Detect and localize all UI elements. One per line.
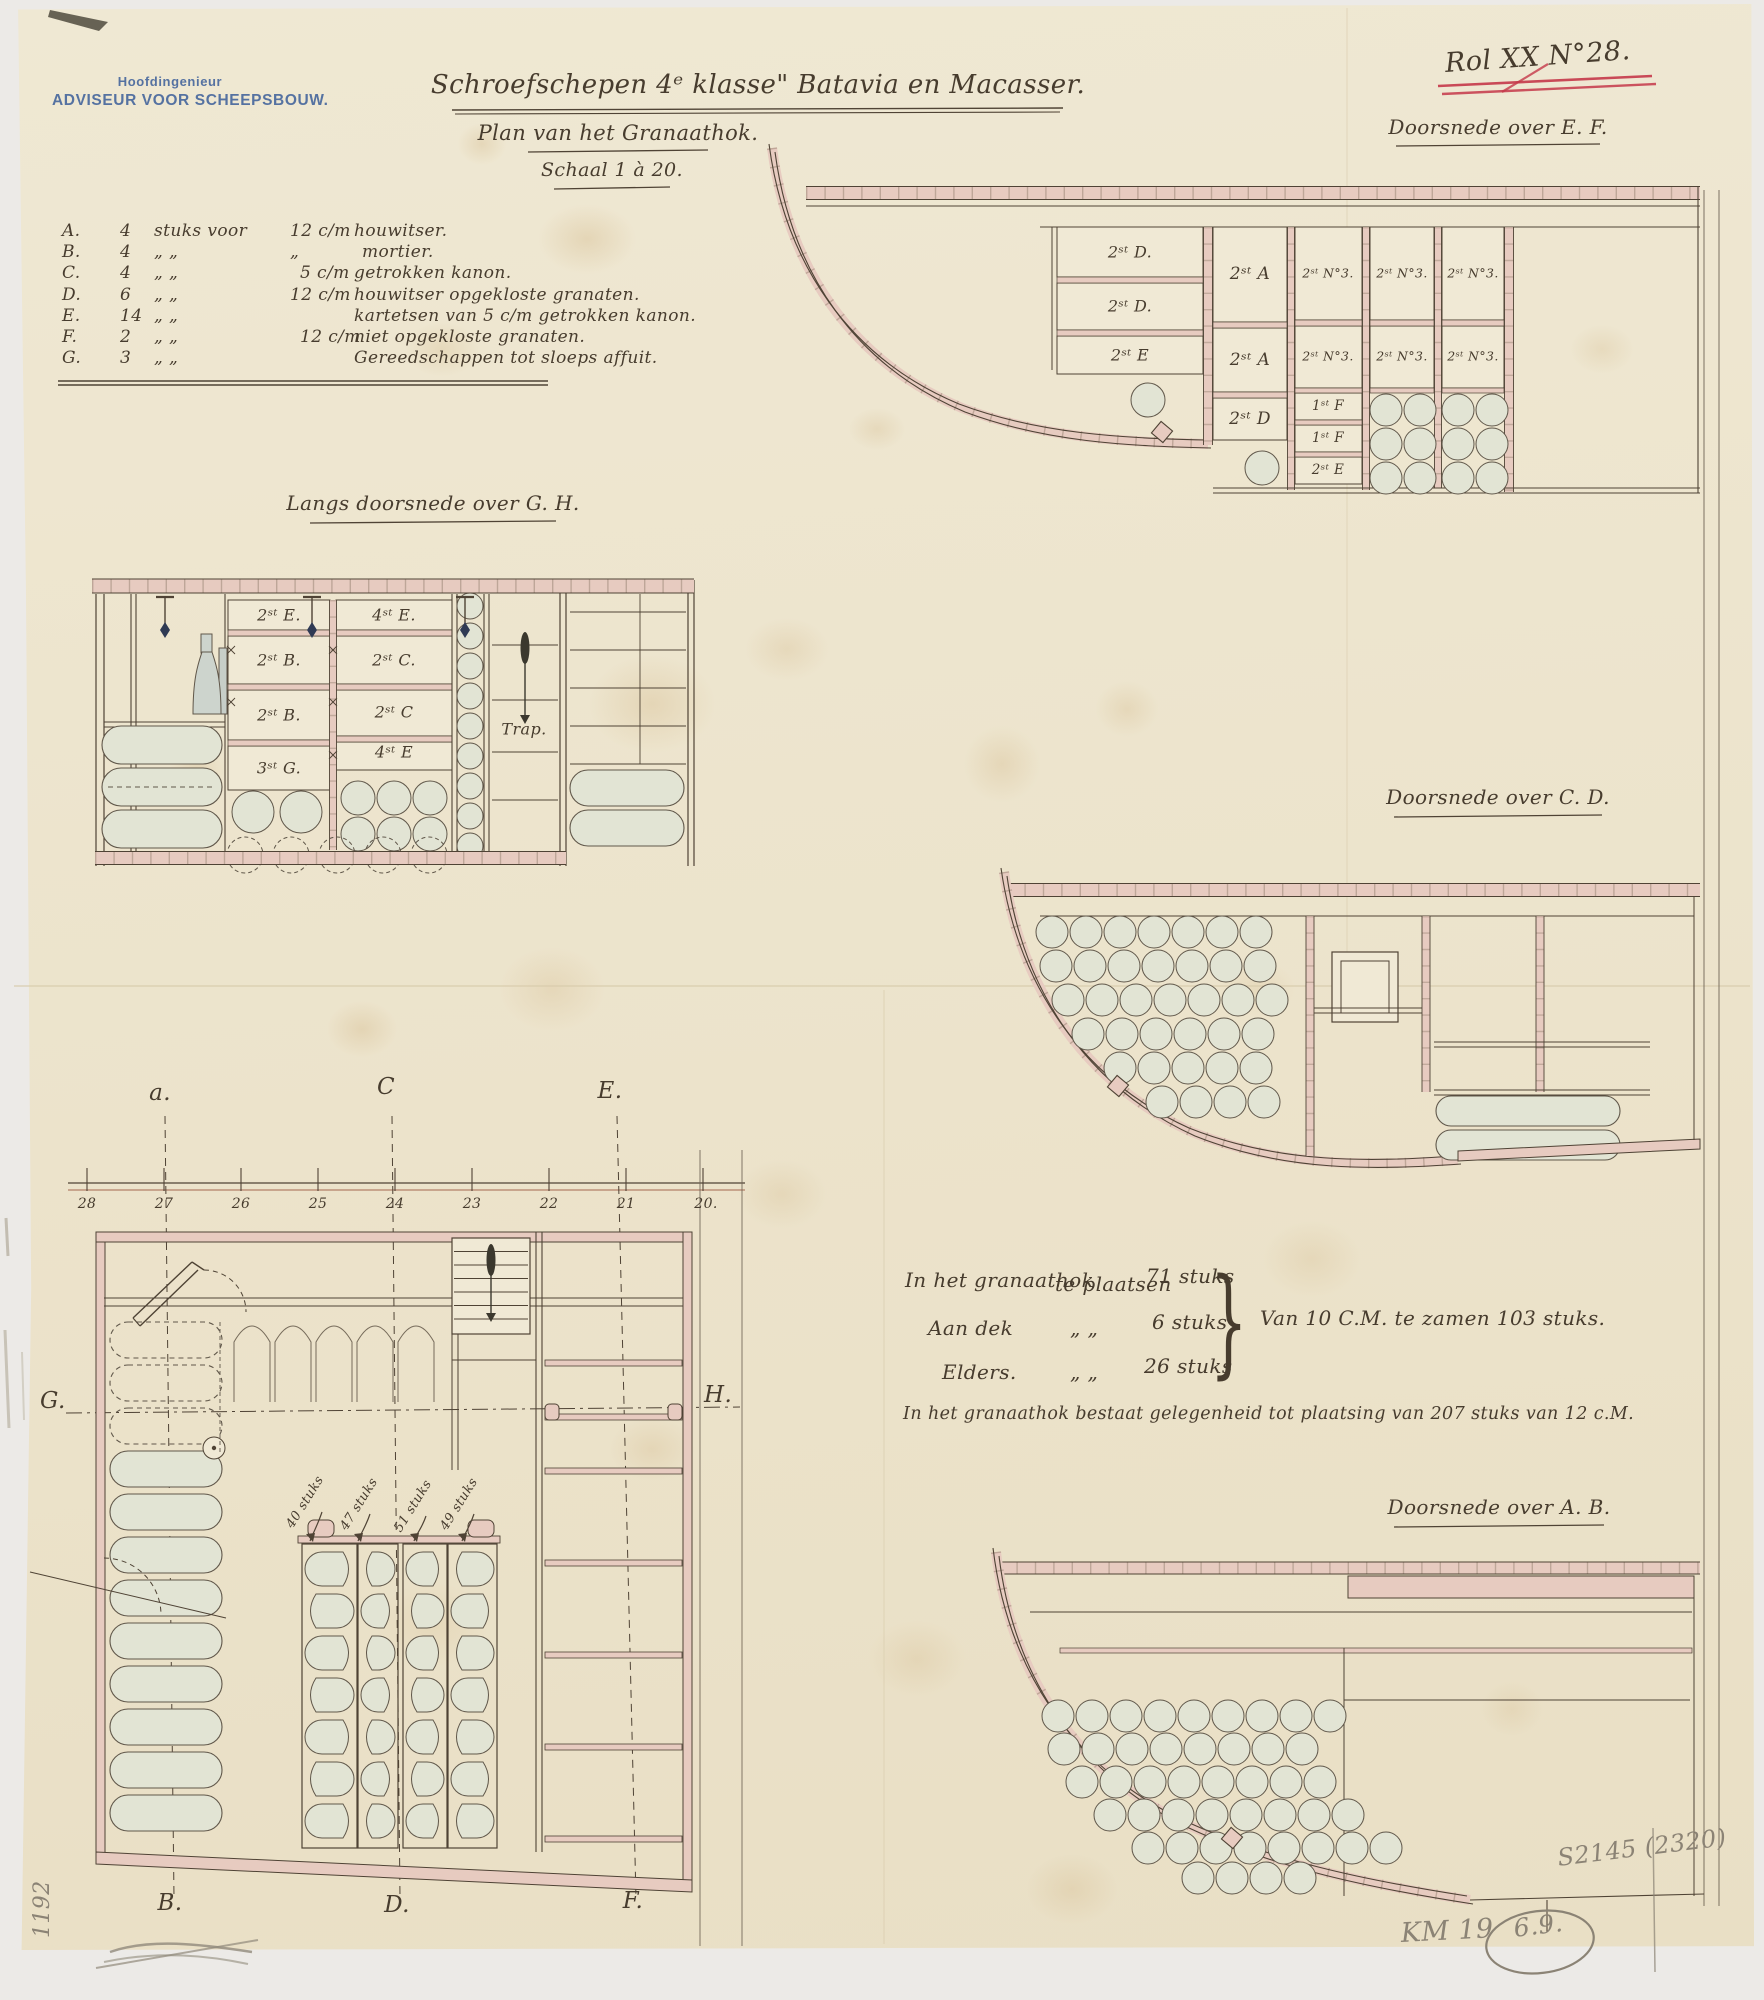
plan-top-label-a: a. [149,1080,171,1106]
inventory-circled: 6.9. [1512,1908,1564,1943]
plan-top-label-c: C [377,1074,395,1100]
frame-number: 22 [540,1196,559,1212]
ef-cell-label: 1ˢᵗ F [1312,398,1344,414]
frame-number: 21 [617,1196,636,1212]
plan-left-label-g: G. [40,1388,66,1414]
gh-cell-label: 2ˢᵗ B. [257,706,301,725]
page-subtitle: Plan van het Granaathok. [478,121,759,145]
note-summary: Van 10 C.M. te zamen 103 stuks. [1260,1306,1605,1330]
frame-number: 23 [463,1196,482,1212]
gh-cell-label: 2ˢᵗ C. [372,651,416,670]
scale-label: Schaal 1 à 20. [541,159,683,181]
gh-cell-label: 2ˢᵗ E. [257,606,301,625]
ef-cell-label: 2ˢᵗ N°3. [1376,266,1428,281]
legend: A.4stuks voor12 c/mhouwitser. B.4„ „„mor… [62,221,622,369]
margin-pencil-number: 1192 [30,1880,55,1938]
ef-cell-label: 2ˢᵗ N°3. [1447,266,1499,281]
plan-right-label-h: H. [704,1382,732,1408]
trap-label: Trap. [501,720,546,739]
scanned-drawing-page: Hoofdingenieur ADVISEUR VOOR SCHEEPSBOUW… [0,0,1764,2000]
gh-cell-label: 2ˢᵗ B. [257,651,301,670]
gh-cell-label: 3ˢᵗ G. [257,759,301,778]
legend-row: E.14„ „kartetsen van 5 c/m getrokken kan… [62,306,622,327]
ef-cell-label: 2ˢᵗ N°3. [1302,349,1354,364]
ef-cell-label: 2ˢᵗ A [1230,350,1270,370]
inventory-km: KM 19 [1400,1913,1494,1949]
ef-cell-label: 2ˢᵗ N°3. [1447,349,1499,364]
stamp-line1: Hoofdingenieur [118,74,222,89]
frame-number: 20. [694,1196,717,1212]
ef-cell-label: 2ˢᵗ N°3. [1302,266,1354,281]
page-title: Schroefschepen 4ᵉ klasse" Batavia en Mac… [431,70,1085,100]
section-title-cd: Doorsnede over C. D. [1386,785,1610,809]
ef-cell-label: 2ˢᵗ D. [1108,297,1152,316]
note-footnote: In het granaathok bestaat gelegenheid to… [903,1404,1634,1424]
section-title-ab: Doorsnede over A. B. [1388,1495,1611,1519]
legend-row: C.4„ „5 c/mgetrokken kanon. [62,263,622,284]
ef-cell-label: 1ˢᵗ F [1312,430,1344,446]
ef-cell-label: 2ˢᵗ A [1230,264,1270,284]
plan-bottom-label-b: B. [157,1890,182,1916]
plan-bottom-label-d: D. [384,1892,410,1918]
frame-number: 24 [386,1196,405,1212]
note-row2-mid: „ „ [1070,1316,1098,1340]
frame-number: 25 [309,1196,328,1212]
gh-cell-label: 4ˢᵗ E [375,743,413,762]
plan-bottom-label-f: F. [623,1888,644,1914]
legend-row: G.3„ „Gereedschappen tot sloeps affuit. [62,348,622,369]
gh-cell-label: 2ˢᵗ C [375,703,414,722]
note-row3-mid: „ „ [1070,1360,1098,1384]
legend-row: B.4„ „„mortier. [62,242,622,263]
note-row3-label: Elders. [942,1360,1017,1384]
ef-cell-label: 2ˢᵗ D [1229,409,1271,429]
plan-top-label-e: E. [598,1078,623,1104]
legend-row: F.2„ „12 c/mniet opgekloste granaten. [62,327,622,348]
ef-cell-label: 2ˢᵗ E [1111,346,1149,365]
ef-cell-label: 2ˢᵗ E [1312,462,1345,478]
ef-cell-label: 2ˢᵗ D. [1108,243,1152,262]
legend-row: D.6„ „12 c/mhouwitser opgekloste granate… [62,285,622,306]
frame-number: 27 [155,1196,174,1212]
frame-number: 26 [232,1196,251,1212]
stamp-line2: ADVISEUR VOOR SCHEEPSBOUW. [52,92,329,110]
gh-cell-label: 4ˢᵗ E. [372,606,416,625]
note-brace: } [1210,1252,1248,1390]
ef-cell-label: 2ˢᵗ N°3. [1376,349,1428,364]
frame-number: 28 [78,1196,97,1212]
section-title-ef: Doorsnede over E. F. [1388,115,1607,139]
note-row2-label: Aan dek [928,1316,1013,1340]
section-title-gh: Langs doorsnede over G. H. [286,491,579,515]
legend-row: A.4stuks voor12 c/mhouwitser. [62,221,622,242]
